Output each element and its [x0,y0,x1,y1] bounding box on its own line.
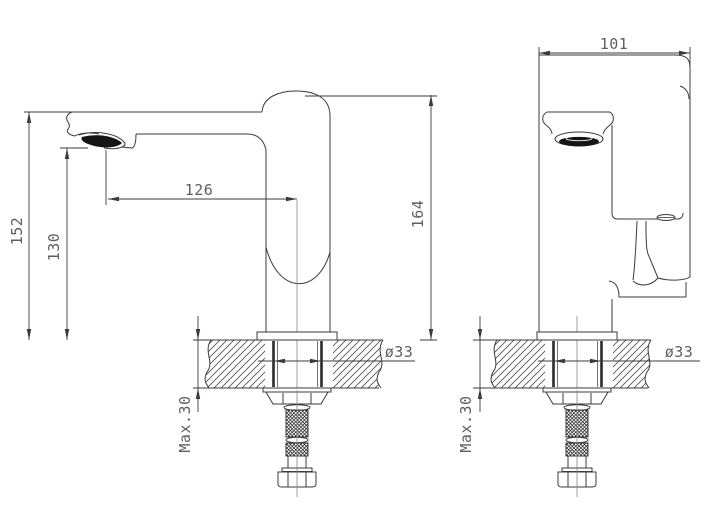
dim-overall-height-label: 164 [409,200,427,229]
faucet-installation-drawing: 152 130 126 164 101 ø33 ø33 Max.30 Max.3… [0,0,711,520]
dim-max-deck-side-label: Max.30 [176,395,194,452]
counter-section-side [205,340,383,388]
front-body-top-and-left [539,55,690,332]
faucet-side-profile-view [24,91,437,497]
dim-outlet-height-label: 130 [45,233,63,262]
dim-spout-height-label: 152 [8,217,26,246]
body-dome-and-right-edge [262,91,330,332]
spout-tip-profile [67,112,75,136]
dim-max-deck-front-label: Max.30 [457,395,475,452]
body-bottom-curve [266,247,330,284]
handle-stem-right [646,221,658,278]
counter-section-front [491,340,651,388]
dim-hole-dia-front-label: ø33 [665,343,694,361]
handle-stem-left [633,221,637,280]
front-body-corner-detail [680,86,689,99]
dim-hole-dia-side-label: ø33 [385,343,414,361]
spout-underside-and-body-left [136,134,266,332]
dim-body-width-label: 101 [600,35,629,53]
faucet-front-view [473,55,690,497]
column-right-edge [612,125,618,219]
base-shoulder [609,281,686,297]
handle-blade-bottom [658,277,690,280]
handle-stem-bottom [633,278,658,285]
spout-cup [543,112,614,134]
aerator-dark-front [559,137,599,147]
technical-drawing-page: 152 130 126 164 101 ø33 ø33 Max.30 Max.3… [0,0,711,520]
aerator-dark-side [81,135,122,147]
dim-spout-reach-label: 126 [185,181,214,199]
